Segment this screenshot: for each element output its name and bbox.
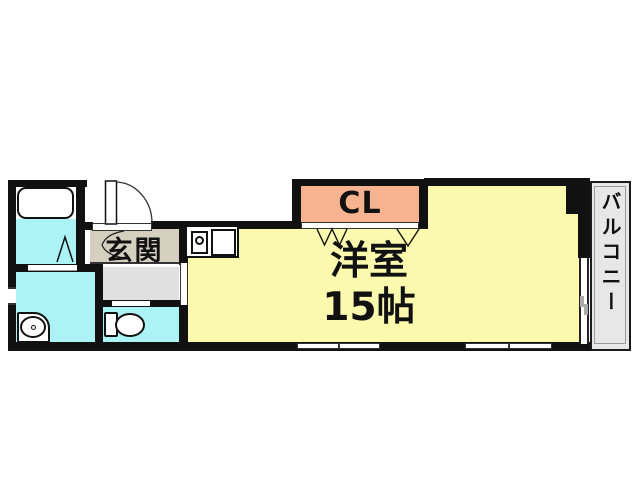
bathtub-icon	[17, 187, 74, 219]
room-main-upper	[424, 184, 580, 224]
wall-wash-toilet	[95, 264, 103, 350]
washbasin-icon	[17, 312, 50, 343]
window-divider	[508, 344, 510, 348]
main-room-name: 洋室	[330, 239, 408, 284]
hall-sliding-door-icon	[180, 263, 188, 305]
stove-box	[191, 231, 208, 254]
sink-box	[211, 229, 236, 256]
basin-drain	[31, 325, 36, 330]
slider-handle	[584, 304, 588, 315]
main-room-label: 洋室 15帖	[264, 239, 474, 331]
kitchen-sink-icon	[185, 225, 239, 258]
closet-track	[301, 222, 419, 229]
balcony-label: バルコニー	[592, 191, 629, 357]
main-room-size: 15帖	[322, 285, 415, 330]
entrance-door-leaf-icon	[106, 181, 117, 224]
closet-label: CL	[296, 186, 424, 221]
burner-circle	[195, 236, 204, 245]
toilet-bowl	[115, 313, 145, 337]
room-balcony: バルコニー	[590, 181, 631, 351]
floor-plan: バルコニー CL 玄関 洋室 15帖	[0, 0, 640, 480]
window-bottom-left-icon	[297, 343, 380, 349]
toilet-door-gap	[112, 301, 150, 306]
window-left-icon	[8, 287, 16, 305]
entrance-label: 玄関	[90, 229, 179, 268]
entrance-door-arc-icon	[116, 182, 152, 223]
window-divider	[338, 344, 340, 348]
wall-top-right	[424, 178, 582, 186]
wall-closet-top	[292, 179, 428, 186]
balcony-sliding-door-icon	[579, 258, 589, 344]
washroom-door-gap	[28, 265, 77, 271]
wall-right-upper	[578, 178, 590, 258]
window-bottom-right-icon	[465, 343, 552, 349]
